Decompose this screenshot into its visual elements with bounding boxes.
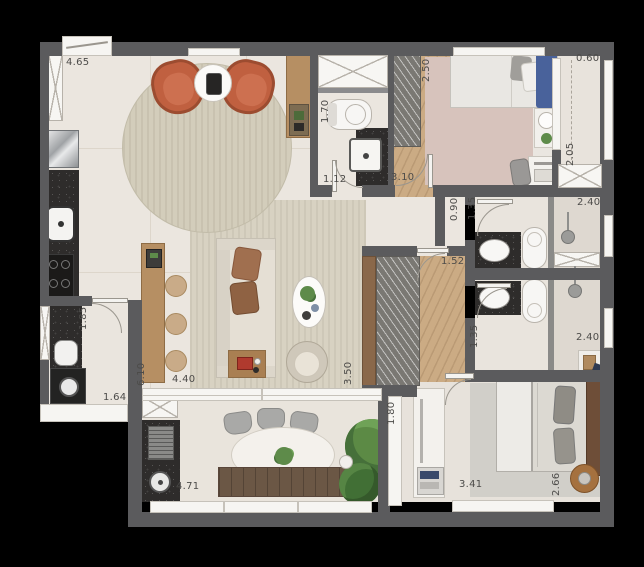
laundry-stub-wall (48, 296, 92, 306)
dim-service-balcony-width: 0.60 (576, 53, 599, 64)
wc-toilet (326, 99, 372, 130)
dim-service-balcony-length: 2.05 (565, 143, 576, 166)
dim-wc-width: 1.12 (323, 174, 346, 185)
laundry-door-leaf (92, 298, 128, 303)
closet-side-panel (362, 256, 376, 386)
bathroom1-window (604, 215, 613, 257)
bar-decor (146, 249, 162, 268)
bedroom1-door-leaf (428, 154, 433, 188)
sofa-pillow-2 (229, 280, 260, 315)
living-top-window (188, 48, 240, 56)
dining-bench (218, 467, 350, 497)
shower2-partition (548, 280, 554, 370)
bathroom1-toilet (522, 227, 547, 269)
floor-plan: 4.65 0.60 2.50 1.70 1.12 3.10 2.05 0.90 … (0, 0, 644, 567)
table-plant (300, 286, 315, 301)
bathroom2-left-wall-top (465, 280, 475, 286)
laundry-window-band (40, 404, 128, 422)
hall-bottom-wall-right (447, 246, 467, 256)
dim-laundry-width: 1.64 (103, 392, 126, 403)
dim-hall-width: 0.90 (449, 198, 460, 221)
bbq-sink (149, 471, 171, 493)
bathroom2-bottom-wall (465, 370, 608, 382)
tablet-on-table (206, 73, 222, 95)
bedroom1-wardrobe (393, 55, 421, 147)
bed2-headboard (586, 374, 601, 476)
terrace-plant-small (339, 463, 381, 505)
bedroom2-round-table (570, 464, 599, 493)
bedroom1-balcony-door (552, 58, 561, 150)
dim-terrace-width: 4.71 (176, 481, 199, 492)
living-side-table (228, 350, 266, 378)
corridor-closet (376, 256, 420, 386)
dim-bathroom1-width: 2.40 (577, 197, 600, 208)
wc-left-wall (310, 55, 318, 197)
dim-living-width: 4.40 (172, 374, 195, 385)
wc-shaft-closet (318, 55, 388, 88)
laptop (417, 467, 444, 495)
entry-closet (48, 55, 63, 121)
armchair-cushion (233, 71, 270, 109)
shower1-head (561, 230, 575, 244)
bar-stool-2 (165, 313, 187, 335)
dim-hall-length: 1.52 (441, 256, 464, 267)
terrace-railing (150, 501, 372, 513)
dim-bedroom2-depth: 2.66 (551, 473, 562, 496)
bed2-pillow-2 (553, 427, 576, 464)
bathroom2-window (604, 308, 613, 348)
dim-living-depth: 3.50 (343, 362, 354, 385)
dim-living-length: 6.10 (136, 363, 147, 386)
dim-laundry-depth: 1.85 (78, 307, 89, 330)
laundry-sink (54, 340, 78, 366)
service-balcony-cabinet (558, 164, 602, 188)
bedroom1-desk-chair (509, 158, 532, 188)
terrace-pot (339, 455, 353, 469)
armchair-cushion (160, 70, 197, 108)
sofa-pillow-1 (231, 246, 263, 282)
hall-stub-wall (435, 197, 445, 246)
dim-bathroom2-width: 2.40 (576, 332, 599, 343)
bathrooms-divider-wall (465, 268, 600, 280)
kitchen-sink (46, 206, 75, 242)
bathroom1-sink (479, 239, 510, 262)
dim-bedroom2-width: 3.41 (459, 479, 482, 490)
hall-top-wall-c (433, 185, 555, 197)
dim-entry: 4.65 (66, 57, 89, 68)
shower1-partition (548, 197, 554, 268)
red-book (237, 357, 253, 370)
laundry-wall-cabinet (40, 306, 50, 360)
dim-wc-depth: 1.70 (320, 100, 331, 123)
bedroom2-bottom-window (452, 500, 554, 512)
round-armchair (286, 341, 328, 383)
table-centerpiece-plant (275, 447, 293, 465)
bed2-folded-sheet (497, 379, 533, 471)
hall-top-wall-a (310, 185, 332, 197)
living-terrace-slider (142, 388, 382, 401)
bed2-pillow-1 (553, 385, 577, 424)
coffee-table (292, 276, 326, 328)
terrace-left-wall (128, 300, 142, 512)
outer-wall-bottom (128, 512, 614, 527)
hall-top-wall-b (362, 185, 395, 197)
console-decor (289, 104, 309, 136)
bedroom2-desk (413, 388, 445, 498)
service-balcony-window (604, 60, 613, 160)
dim-bedroom1-width: 3.10 (391, 172, 414, 183)
shower1-bench (554, 252, 600, 267)
bar-stool-3 (165, 350, 187, 372)
hall-bottom-wall-left (362, 246, 417, 256)
shower2-head (568, 284, 582, 298)
bathroom1-left-wall-bottom (465, 240, 475, 270)
dim-bathroom2-depth: 1.35 (469, 325, 480, 348)
bathroom2-toilet (522, 279, 547, 323)
dim-bedroom1-depth: 2.50 (421, 59, 432, 82)
bedroom1-top-window (453, 47, 545, 56)
dim-bathroom1-depth: 1.35 (467, 197, 478, 220)
bar-stool-1 (165, 275, 187, 297)
washing-machine (50, 368, 86, 404)
bbq-grill (148, 426, 174, 460)
dim-terrace-depth: 1.80 (386, 402, 397, 425)
